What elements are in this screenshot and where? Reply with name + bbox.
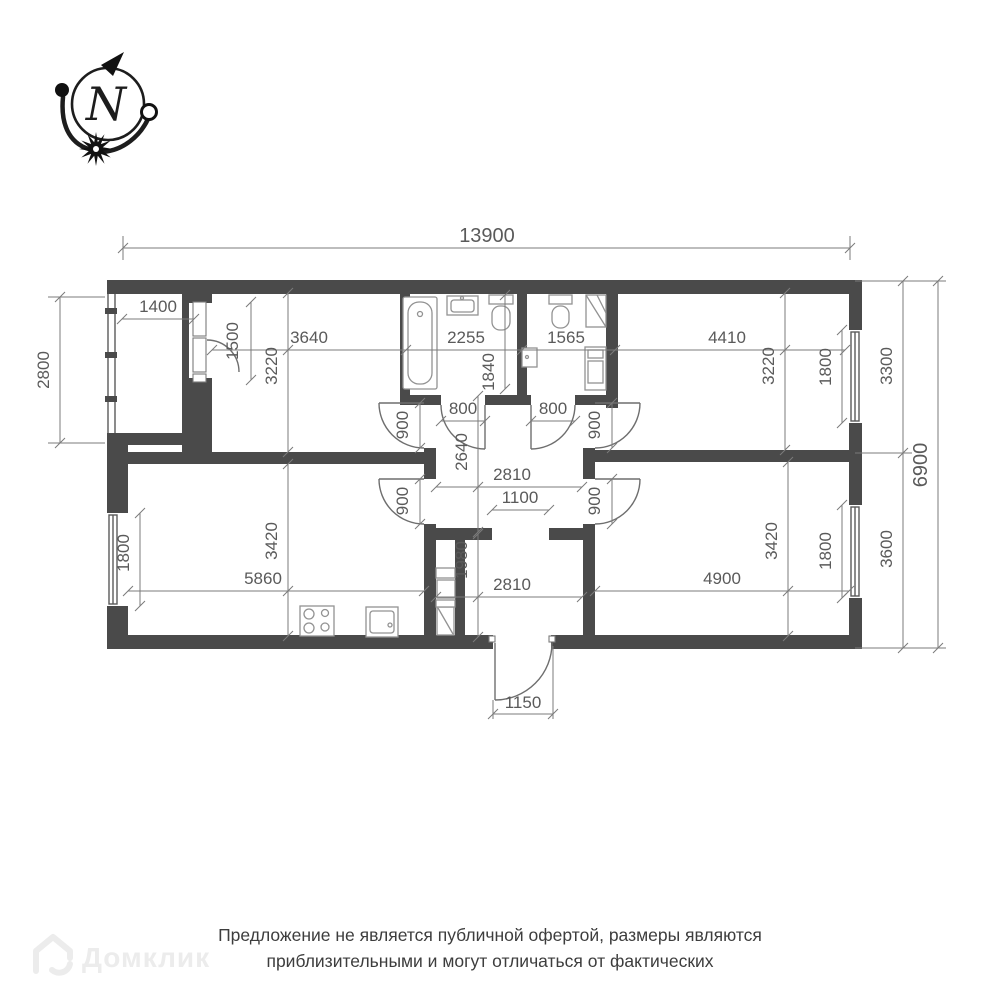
balcony-door-frame-3 [193,374,206,382]
dim-label-door-wc: 800 [539,399,567,418]
dim-label-hall-opening: 1100 [502,488,539,507]
wall-hall-right-a [583,395,595,403]
dim-label-section-right-top: 3300 [877,347,896,385]
wall-hall-left-a [424,395,436,403]
compass-north-label: N [85,77,128,131]
dim-hall-opening: 1100 [487,488,554,515]
dim-living-width: 5860 [123,569,429,596]
dim-label-section-right-bottom: 3600 [877,530,896,568]
wall-living-right-a [424,464,436,479]
sink-basin [451,300,474,312]
dim-label-total-height: 6900 [910,443,932,488]
dim-label-hall-lower-width: 2810 [493,575,531,594]
compass: N [55,52,157,166]
dim-door-bedroom-tr: 900 [585,398,617,453]
disclaimer: Предложение не является публичной оферто… [218,925,762,971]
entry-jamb-left [489,636,495,642]
dim-window-br: 1800 [816,500,847,603]
compass-arrow-icon [101,52,124,76]
wall-exterior-bottom [107,635,862,649]
closet-shelf-3 [436,600,455,607]
wall-hall-right-c [583,524,595,636]
toilet-bowl-icon [492,306,510,330]
closet-shelf-2 [437,580,455,598]
dim-label-door-living: 900 [393,487,412,515]
dim-label-room-tl-width: 3640 [290,328,328,347]
dim-label-closet-depth: 1980 [452,541,471,579]
dim-label-living-depth: 3420 [262,522,281,560]
balcony-door-frame-1 [193,302,206,336]
dim-door-room-tl: 900 [393,398,425,453]
dim-label-balcony-width: 1400 [139,297,177,316]
balcony-mullion-1 [105,308,117,314]
dim-label-bedroom-tr-width: 4410 [708,328,746,347]
balcony-mullion-3 [105,396,117,402]
compass-dot-icon [55,83,69,97]
dim-bedroom-br-width: 4900 [590,569,854,596]
dim-room-tl-depth: 3220 [262,288,293,457]
dim-total-height: 6900 [910,276,943,653]
dim-label-door-bedroom-tr: 900 [585,411,604,439]
compass-sun-center [93,146,99,152]
dim-label-hall-width: 2810 [493,465,531,484]
dim-label-bedroom-br-width: 4900 [703,569,741,588]
watermark: Домклик [36,937,210,973]
disclaimer-line2: приблизительными и могут отличаться от ф… [266,951,713,971]
wc-toilet-tank-icon [549,295,572,304]
dim-label-wc-width: 1565 [547,328,585,347]
balcony-door-frame-2 [193,338,206,372]
dim-label-balcony-height: 2800 [34,351,53,389]
dim-bedroom-tr-depth: 3220 [759,288,790,455]
dim-right-sections: 3300 3600 [855,276,946,653]
dim-entry-width: 1150 [488,646,558,719]
wall-exterior-top [107,280,862,294]
dim-label-window-br: 1800 [816,532,835,570]
dim-label-bedroom-tr-depth: 3220 [759,347,778,385]
dim-label-bedroom-br-depth: 3420 [762,522,781,560]
floorplan-page: N [0,0,1000,1000]
dim-door-bedroom-br: 900 [585,474,617,529]
disclaimer-line1: Предложение не является публичной оферто… [218,925,762,945]
dim-living-depth: 3420 [262,459,293,641]
dim-label-door-bath: 800 [449,399,477,418]
wall-living-right-b [424,524,436,636]
entry-opening [489,634,555,650]
entry-door-arc [495,643,552,700]
dim-door-living: 900 [393,474,425,529]
wall-balcony-right-strip [182,303,189,378]
entry-gap [493,634,551,650]
dim-balcony-height: 2800 [34,292,105,448]
dim-label-entry-width: 1150 [505,693,542,712]
wall-mid-left [128,452,436,464]
kitchen-sink-basin [370,611,394,633]
wc-sink-icon [522,348,537,367]
wall-mid-right [595,450,849,462]
dim-label-bathroom-depth: 1840 [479,353,498,391]
bathtub-inner [408,302,432,384]
wall-balcony-right-bottom [182,378,212,433]
compass-ring-icon [142,105,157,120]
wc-toilet-bowl-icon [552,306,569,328]
wall-hall-right-b [583,448,595,479]
dim-window-tr: 1800 [816,325,847,428]
dim-label-hall-depth: 2640 [452,433,471,471]
dim-label-room-tl-depth: 3220 [262,347,281,385]
dim-label-window-tr: 1800 [816,348,835,386]
balcony-mullion-2 [105,352,117,358]
floorplan-canvas: N [0,0,1000,1000]
dim-label-window-left: 1800 [114,534,133,572]
dim-label-door-bedroom-br: 900 [585,487,604,515]
washer-top [588,350,603,358]
dim-bedroom-br-depth: 3420 [762,457,793,641]
domklik-house-icon [36,937,70,973]
dim-label-living-width: 5860 [244,569,282,588]
dim-label-door-room-tl: 900 [393,411,412,439]
watermark-brand: Домклик [82,942,210,973]
dim-label-balcony-door: 1500 [223,322,242,360]
wall-bath-bottom-2 [485,395,531,405]
washer-drum [588,361,603,383]
entry-jamb-right [549,636,555,642]
dim-label-total-width: 13900 [459,225,515,247]
dim-label-bathroom-width: 2255 [447,328,485,347]
dim-total-width: 13900 [118,225,855,260]
